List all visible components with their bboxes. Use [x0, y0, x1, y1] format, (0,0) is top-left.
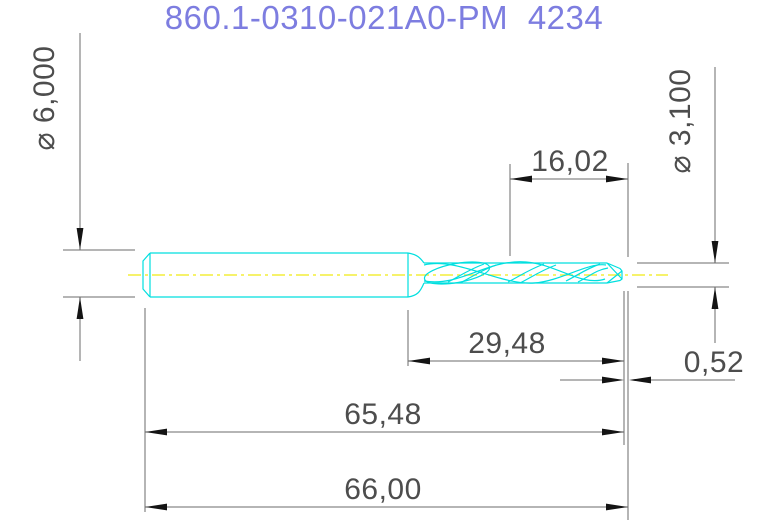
dim-shank-diameter: ⌀ 6,000	[28, 33, 135, 361]
dim-tip-segment: 16,02	[510, 145, 628, 257]
dim-label-shank-diameter: ⌀ 6,000	[28, 46, 61, 151]
dim-label-point-length: 0,52	[684, 346, 744, 379]
neck-bottom-fillet	[408, 283, 424, 297]
arrowhead-up	[77, 297, 84, 319]
arrowhead-right	[602, 358, 624, 365]
dim-label-tip-segment: 16,02	[531, 145, 609, 178]
arrowhead-left	[408, 358, 430, 365]
arrowhead-left-pointing	[629, 377, 651, 384]
dim-label-overall-length: 66,00	[344, 473, 422, 506]
arrowhead-up	[712, 287, 719, 309]
arrowhead-left	[145, 429, 167, 436]
arrowhead-down	[712, 241, 719, 263]
arrowhead-left	[145, 504, 167, 511]
neck-top-fillet	[408, 253, 424, 263]
arrowhead-right	[602, 429, 624, 436]
cad-drawing-canvas: 860.1-0310-021A0-PM 4234 ⌀ 6,000	[0, 0, 767, 523]
arrowhead-left	[510, 176, 532, 183]
arrowhead-right	[606, 504, 628, 511]
extension-ticks	[63, 250, 135, 297]
drill-part-outline	[143, 253, 622, 297]
dim-label-cutting-diameter: ⌀ 3,100	[664, 69, 697, 174]
drawing-title: 860.1-0310-021A0-PM 4234	[165, 0, 603, 36]
dim-label-flute-length: 29,48	[468, 327, 546, 360]
dim-point-length: 0,52	[560, 346, 744, 383]
arrowhead-down	[77, 228, 84, 250]
dim-cutting-diameter: ⌀ 3,100	[637, 67, 729, 343]
arrowhead-right	[606, 176, 628, 183]
dim-flute-length: 29,48	[408, 291, 624, 445]
arrowhead-right-pointing	[602, 377, 624, 384]
technical-drawing: 860.1-0310-021A0-PM 4234 ⌀ 6,000	[0, 0, 767, 523]
dim-label-body-length: 65,48	[344, 398, 422, 431]
